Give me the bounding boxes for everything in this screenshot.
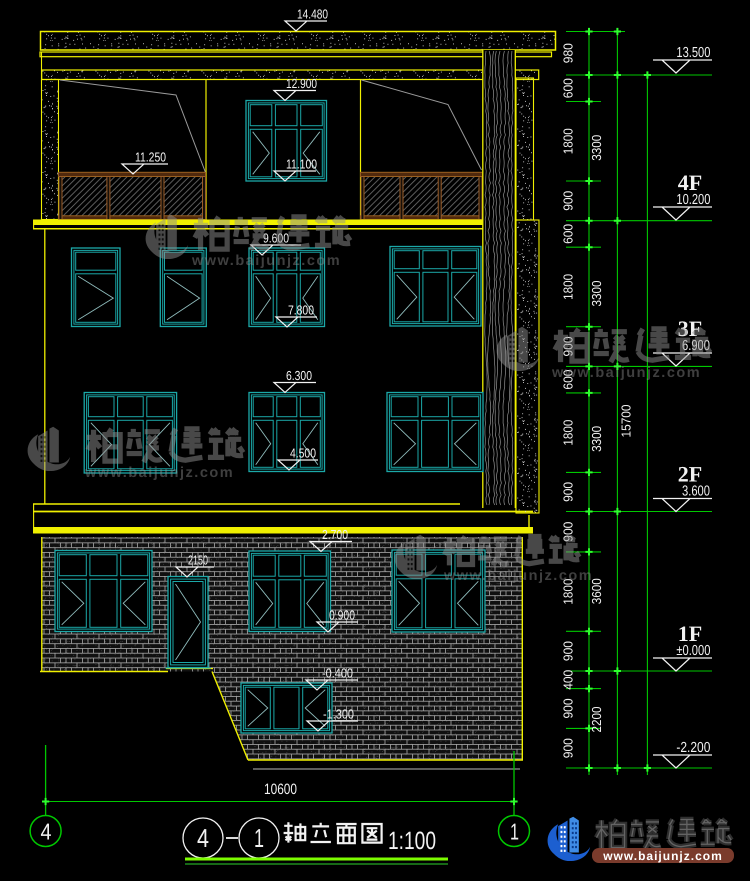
svg-text:1:100: 1:100 [388, 827, 436, 855]
svg-text:900: 900 [561, 738, 576, 758]
svg-text:www.baijunjz.com: www.baijunjz.com [551, 365, 701, 381]
svg-text:1F: 1F [678, 621, 702, 646]
svg-text:900: 900 [561, 482, 576, 502]
svg-text:1: 1 [510, 819, 519, 845]
svg-text:14.480: 14.480 [297, 7, 328, 22]
svg-text:2200: 2200 [589, 707, 604, 733]
svg-text:-2.200: -2.200 [676, 740, 710, 756]
svg-text:-0.400: -0.400 [322, 666, 353, 681]
svg-text:600: 600 [561, 78, 576, 98]
svg-text:www.baijunjz.com: www.baijunjz.com [84, 465, 234, 481]
svg-text:13.500: 13.500 [676, 45, 710, 61]
svg-text:400: 400 [561, 670, 576, 690]
svg-text:7.800: 7.800 [288, 303, 314, 318]
svg-text:11.250: 11.250 [135, 150, 166, 165]
svg-text:4.500: 4.500 [290, 446, 316, 461]
svg-text:1800: 1800 [561, 274, 576, 300]
svg-text:900: 900 [561, 699, 576, 719]
svg-text:2.700: 2.700 [322, 527, 348, 542]
svg-text:1800: 1800 [561, 128, 576, 154]
svg-text:600: 600 [561, 224, 576, 244]
svg-text:6.300: 6.300 [286, 368, 312, 383]
svg-text:www.baijunjz.com: www.baijunjz.com [191, 253, 341, 269]
svg-text:980: 980 [561, 43, 576, 63]
svg-text:4F: 4F [678, 170, 702, 195]
svg-text:3300: 3300 [589, 135, 604, 161]
svg-text:2150: 2150 [188, 553, 208, 568]
svg-text:12.900: 12.900 [286, 76, 317, 91]
svg-text:3300: 3300 [589, 426, 604, 452]
svg-text:10600: 10600 [264, 781, 297, 798]
svg-text:900: 900 [561, 641, 576, 661]
svg-text:3300: 3300 [589, 281, 604, 307]
svg-text:11.100: 11.100 [286, 157, 317, 172]
svg-text:-1.300: -1.300 [323, 707, 354, 722]
svg-text:1: 1 [254, 823, 264, 853]
svg-text:15700: 15700 [619, 405, 634, 438]
svg-text:www.baijunjz.com: www.baijunjz.com [602, 849, 723, 863]
svg-text:2F: 2F [678, 462, 702, 487]
svg-text:1800: 1800 [561, 420, 576, 446]
svg-text:4: 4 [41, 819, 52, 845]
svg-text:4: 4 [197, 823, 209, 853]
svg-text:0.900: 0.900 [329, 608, 355, 623]
svg-text:900: 900 [561, 191, 576, 211]
svg-text:www.baijunjz.com: www.baijunjz.com [443, 568, 593, 584]
